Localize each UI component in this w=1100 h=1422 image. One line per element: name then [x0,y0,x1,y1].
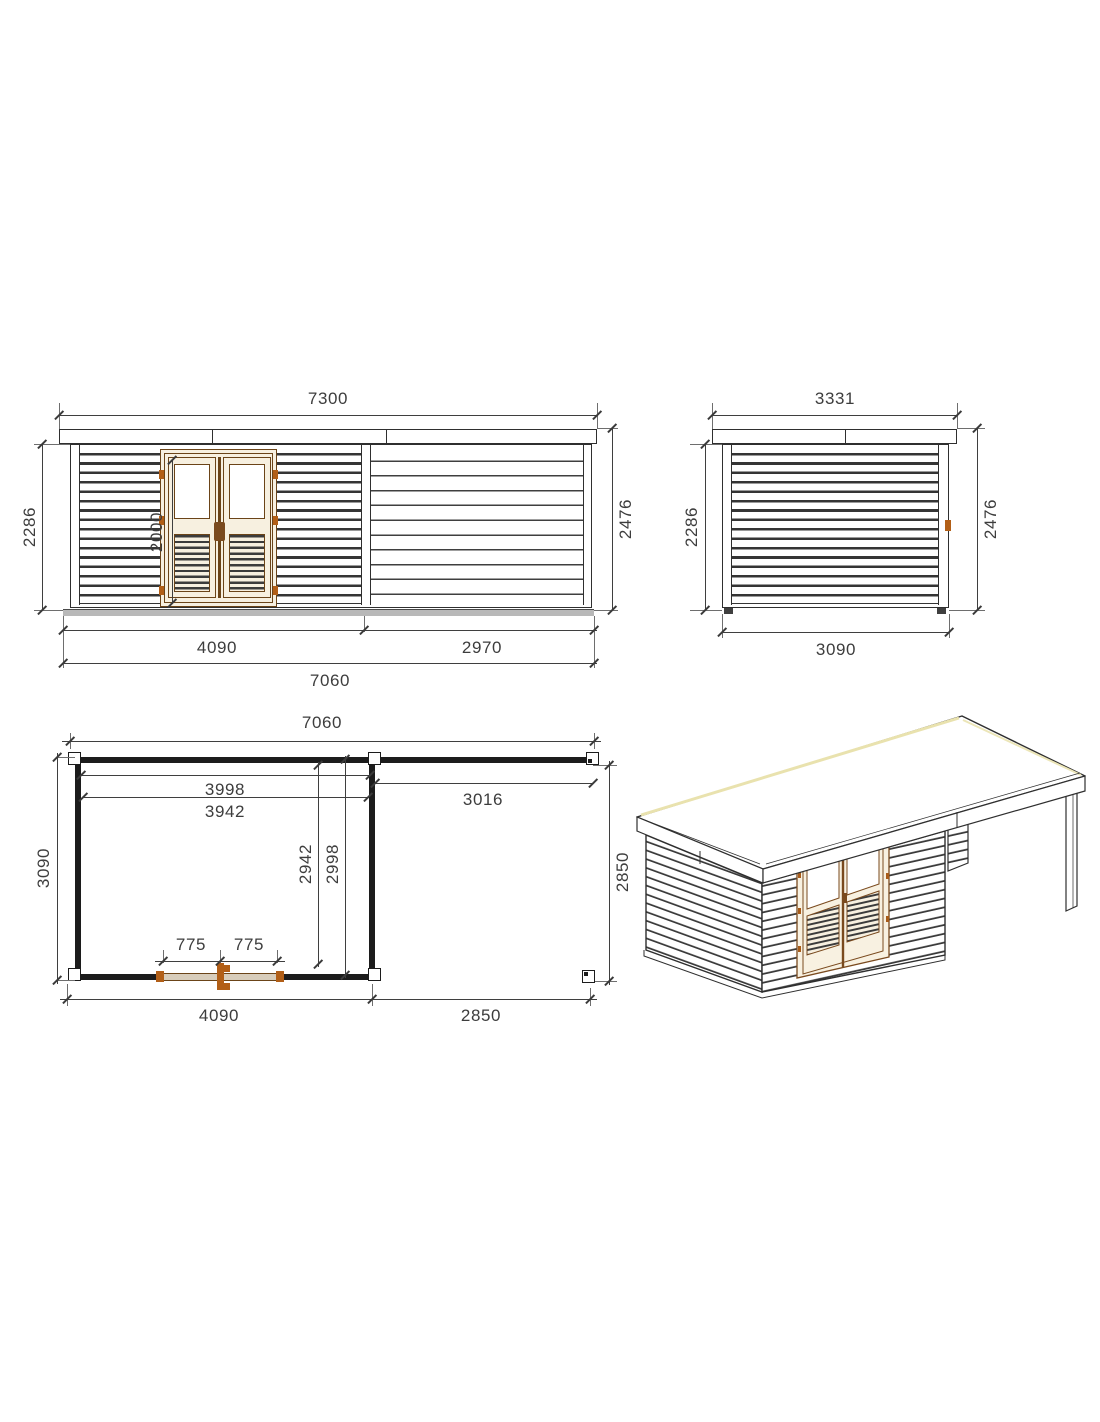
front-dim-2286-line [42,444,43,610]
plan-dim-bottom-line [60,999,597,1000]
plan-dim-canopy-depth: 2850 [613,852,633,892]
side-ext-right-bottom [949,610,985,611]
front-dim-total-height: 2476 [616,499,636,539]
front-dim-cabin-width: 4090 [197,638,237,658]
front-dim-bottom-a-line [63,630,597,631]
plan-dim-cabin-base-width: 4090 [199,1006,239,1026]
plan-ext-bottom-left [67,984,68,1006]
side-dim-wall-height: 2286 [682,507,702,547]
side-ext-roof-left-up [712,403,713,429]
side-dim-roof-depth: 3331 [815,389,855,409]
side-ext-left-bottom [690,610,722,611]
plan-dim-cabin-inner-depth: 2942 [296,844,316,884]
plan-ext-3090-top [58,757,75,758]
plan-ext-bottom-mid [372,984,373,1006]
front-ext-roof-right-up [597,403,598,429]
front-ext-roof-left-up [59,403,60,429]
front-dim-wall-height: 2286 [20,507,40,547]
side-ext-roof-right-up [957,403,958,429]
dimension-layer: 7300228620002476409029707060333122862476… [0,0,1100,1422]
side-dim-base-line [722,632,949,633]
plan-dim-base-depth: 3090 [34,848,54,888]
plan-dim-cabin-wall-width: 3942 [205,802,245,822]
plan-dim-door-leaf-right: 775 [234,935,264,955]
front-ext-right-top [597,428,618,429]
side-ext-base-right [949,614,950,638]
plan-dim-2850-line [609,761,610,985]
front-ext-right-bottom [594,610,618,611]
plan-dim-3090-line [57,753,58,984]
side-dim-2286-line [705,444,706,610]
technical-drawing-canvas: 7300228620002476409029707060333122862476… [0,0,1100,1422]
plan-dim-cabin-inner-width: 3998 [205,780,245,800]
front-dim-canopy-width: 2970 [462,638,502,658]
side-ext-right-top [957,428,985,429]
front-dim-roof-width: 7300 [308,389,348,409]
plan-ext-3090-bottom [58,980,75,981]
plan-dim-3998-line [81,775,370,776]
plan-ext-2850-top [593,765,617,766]
front-dim-base-width: 7060 [310,671,350,691]
plan-dim-cabin-wall-depth: 2998 [323,844,343,884]
plan-dim-2942-line [318,762,319,967]
front-dim-door-height: 2000 [147,512,167,552]
plan-dim-total-width-line [62,741,601,742]
side-ext-base-left [722,614,723,638]
front-dim-bottom-b-line [63,663,597,664]
front-dim-roof-width-line [59,415,597,416]
plan-dim-2998-line [345,756,346,978]
plan-dim-3016-line [375,783,593,784]
plan-dim-canopy-base-width: 2850 [461,1006,501,1026]
front-dim-2476-line [612,428,613,610]
plan-dim-canopy-clear-width: 3016 [463,790,503,810]
plan-dim-base-width: 7060 [302,713,342,733]
side-dim-2476-line [977,428,978,610]
side-dim-roof-depth-line [712,415,957,416]
side-dim-base-depth: 3090 [816,640,856,660]
side-dim-total-height: 2476 [981,499,1001,539]
plan-dim-door-leaf-left: 775 [176,935,206,955]
front-dim-2000-line [172,460,173,603]
